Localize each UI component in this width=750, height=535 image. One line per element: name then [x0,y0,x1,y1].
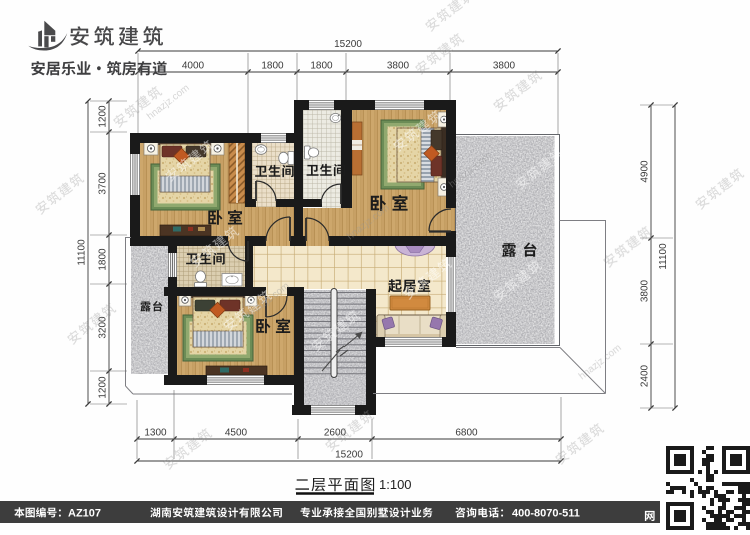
svg-text:3700: 3700 [98,172,109,195]
svg-text:2400: 2400 [640,364,651,387]
svg-text:1800: 1800 [98,248,109,271]
svg-text:4500: 4500 [225,428,248,439]
svg-text:3800: 3800 [493,61,516,72]
svg-text:6800: 6800 [455,428,478,439]
svg-text:AZ107: AZ107 [68,508,101,520]
svg-text:11100: 11100 [658,243,669,270]
svg-text:1800: 1800 [261,61,284,72]
svg-text:1200: 1200 [98,376,109,399]
svg-text:400-8070-511: 400-8070-511 [512,508,580,520]
svg-text:1300: 1300 [144,428,167,439]
svg-text:4900: 4900 [640,160,651,183]
svg-text:11100: 11100 [77,239,88,266]
svg-text:3800: 3800 [387,61,410,72]
svg-text:2600: 2600 [324,428,347,439]
svg-text:15200: 15200 [335,450,363,461]
svg-text:1800: 1800 [310,61,333,72]
svg-text:4000: 4000 [182,61,205,72]
svg-text:1:100: 1:100 [379,477,412,492]
svg-text:15200: 15200 [334,39,362,50]
svg-text:3800: 3800 [640,279,651,302]
svg-text:1200: 1200 [98,105,109,128]
